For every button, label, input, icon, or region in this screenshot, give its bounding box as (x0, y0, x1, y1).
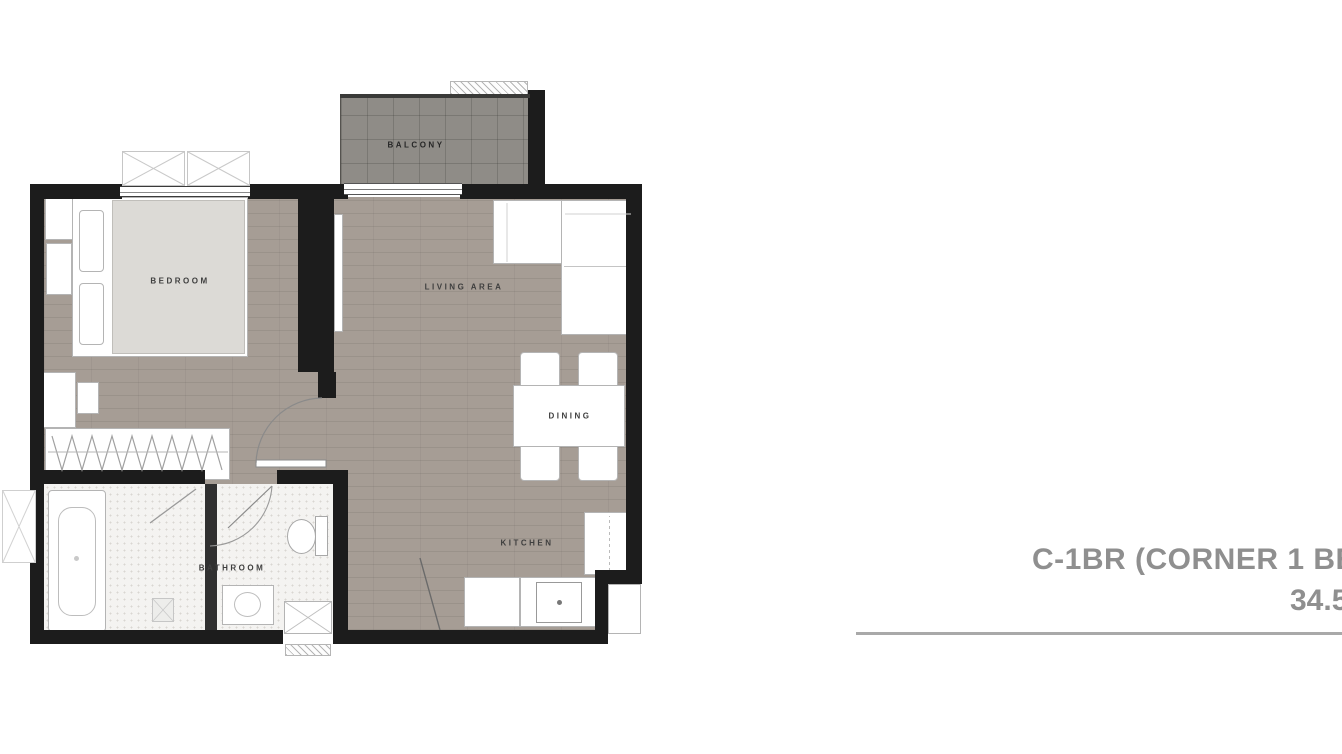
wall-bath-hall (333, 470, 348, 644)
floorplan-page: BALCONY BEDROOM LIVING AREA DINING KITCH… (0, 0, 1342, 754)
shower-drain (152, 598, 174, 622)
bed-pillow (79, 210, 104, 272)
sofa-chaise (493, 200, 565, 264)
wall-bedroom-divider (298, 192, 334, 372)
room-label-bathroom: BATHROOM (199, 564, 266, 573)
wall-balcony-right (528, 90, 545, 190)
sofa-cushion-line (564, 266, 630, 267)
wall-bottom-mid (333, 630, 608, 644)
room-label-living: LIVING AREA (425, 283, 504, 292)
room-label-kitchen: KITCHEN (500, 539, 553, 548)
washer (284, 601, 332, 634)
wall-step-h (595, 570, 642, 584)
exterior-ledge-hatch (285, 644, 331, 656)
wall-door-stub (318, 372, 336, 398)
unit-area: 34.5 (1290, 584, 1342, 618)
balcony-railing (450, 81, 528, 95)
sofa-main (561, 200, 633, 335)
wall-left (30, 184, 44, 644)
room-label-dining: DINING (549, 412, 592, 421)
vanity-basin (234, 592, 261, 617)
exterior-ac-ledge (2, 490, 36, 563)
wall-bottom-left (30, 630, 283, 644)
nightstand (46, 243, 72, 295)
room-label-bedroom: BEDROOM (150, 277, 209, 286)
toilet-bowl (287, 519, 316, 554)
pocket-door-panel (334, 214, 343, 332)
exterior-window-box (122, 151, 185, 186)
room-label-balcony: BALCONY (387, 141, 444, 150)
tub-drain (74, 556, 79, 561)
fridge-line (609, 516, 610, 571)
title-divider-line (856, 632, 1342, 635)
bedroom-window (120, 186, 250, 197)
wall-balcony-top (340, 94, 530, 98)
bed-pillow (79, 283, 104, 345)
stool (77, 382, 99, 414)
dining-chair (578, 443, 618, 481)
service-alcove (608, 584, 641, 634)
toilet-tank (315, 516, 328, 556)
unit-title: C-1BR (CORNER 1 BE (1032, 543, 1342, 577)
desk (42, 372, 76, 428)
exterior-window-box (187, 151, 250, 186)
wall-top-right (460, 184, 642, 199)
sink-drain (557, 600, 562, 605)
kitchen-counter (464, 577, 520, 627)
dining-chair (520, 443, 560, 481)
wall-shower-divider (205, 484, 217, 630)
bathtub-inner (58, 507, 96, 616)
balcony-sliding-door (344, 183, 462, 195)
wall-bathroom-top-a (30, 470, 205, 484)
wall-right (626, 184, 642, 584)
